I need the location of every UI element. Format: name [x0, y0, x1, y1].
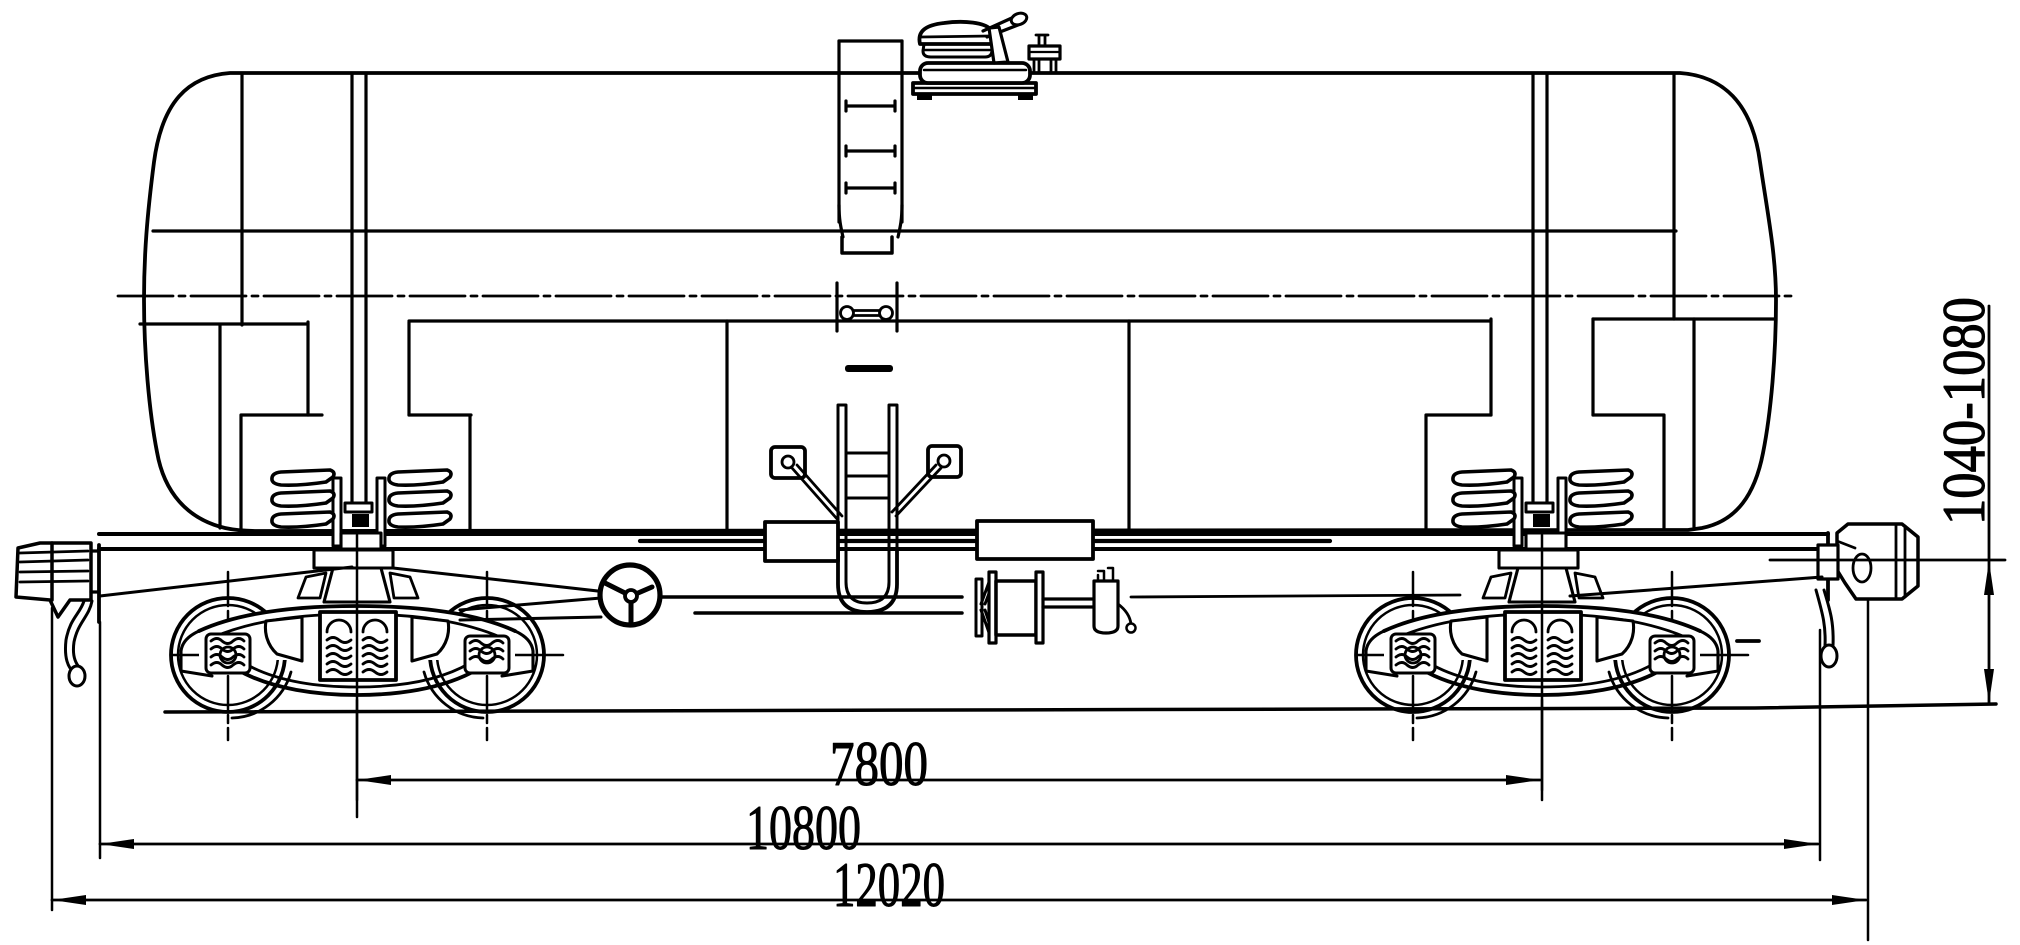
svg-text:7800: 7800 [830, 729, 928, 799]
svg-text:1040-1080: 1040-1080 [1931, 297, 1997, 525]
svg-text:12020: 12020 [833, 850, 945, 920]
